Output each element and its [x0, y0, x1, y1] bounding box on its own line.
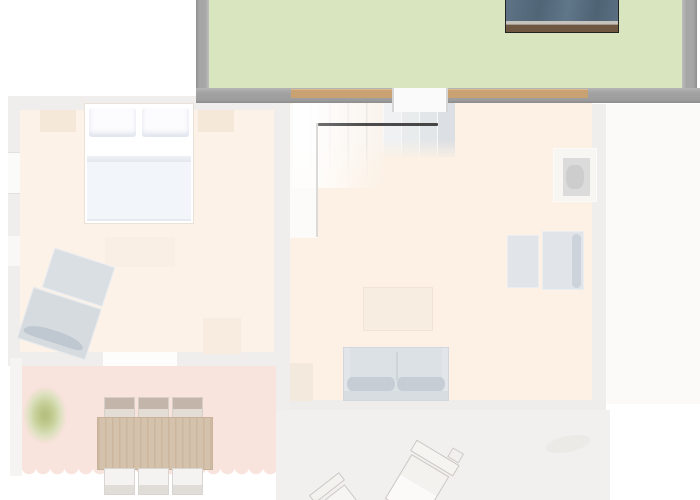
- threshold-right[interactable]: [448, 89, 588, 98]
- floor-plan-canvas: [0, 0, 700, 500]
- garden-door-opening[interactable]: [392, 88, 448, 112]
- threshold-left[interactable]: [291, 89, 392, 98]
- daybed-footboard: [506, 24, 618, 32]
- daybed-body: [506, 0, 618, 21]
- garden-room-group: [0, 0, 700, 500]
- daybed[interactable]: [505, 0, 619, 33]
